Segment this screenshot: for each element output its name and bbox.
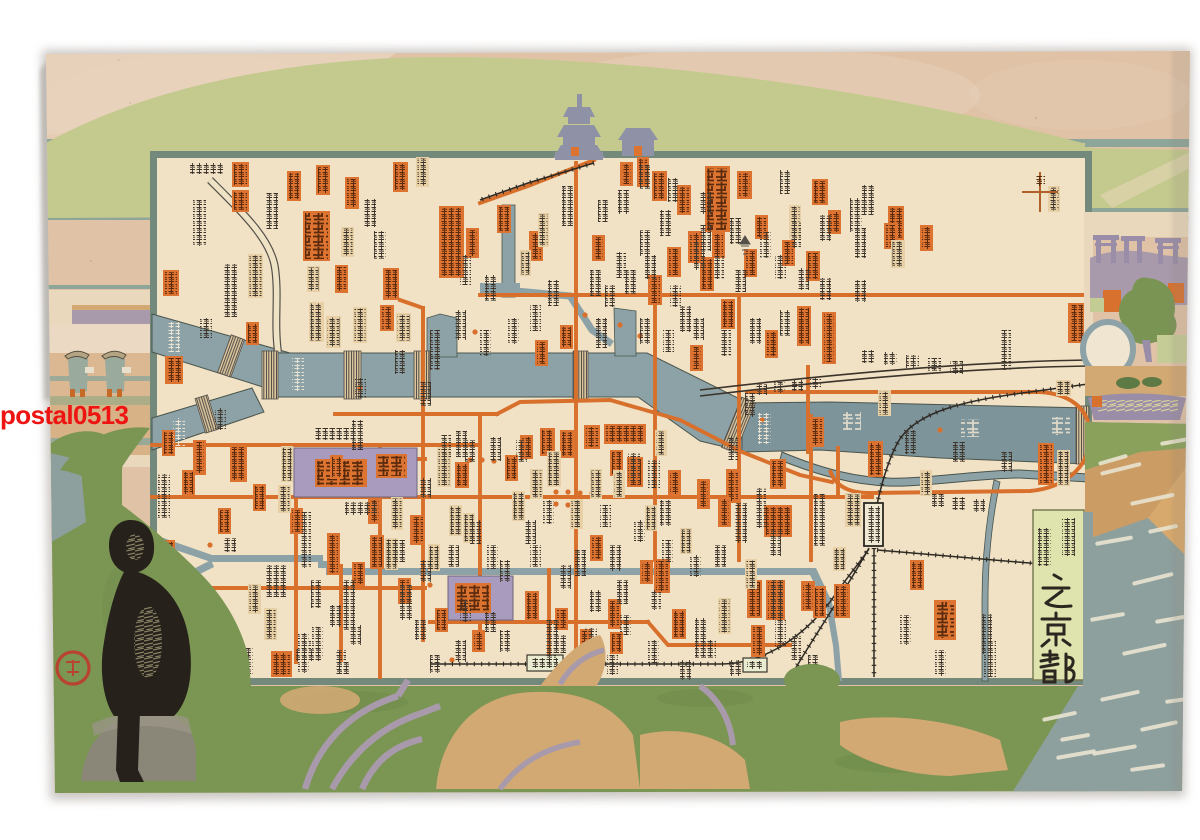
svg-text:postal0513: postal0513 xyxy=(0,400,129,430)
